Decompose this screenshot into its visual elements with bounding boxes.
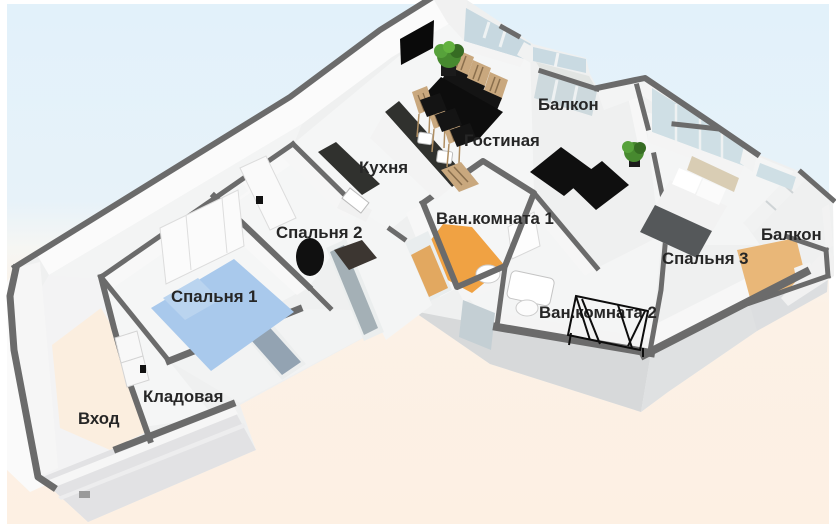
svg-text:Кладовая: Кладовая — [143, 387, 223, 406]
svg-text:Гостиная: Гостиная — [464, 131, 540, 150]
svg-text:Кухня: Кухня — [359, 158, 408, 177]
svg-text:Балкон: Балкон — [538, 95, 599, 114]
svg-text:Ван.комната 2: Ван.комната 2 — [539, 303, 657, 322]
svg-text:Ван.комната 1: Ван.комната 1 — [436, 209, 554, 228]
svg-text:Вход: Вход — [78, 409, 120, 428]
svg-text:Спальня 1: Спальня 1 — [171, 287, 258, 306]
svg-text:Балкон: Балкон — [761, 225, 822, 244]
svg-text:Спальня 3: Спальня 3 — [662, 249, 749, 268]
svg-text:Спальня 2: Спальня 2 — [276, 223, 363, 242]
